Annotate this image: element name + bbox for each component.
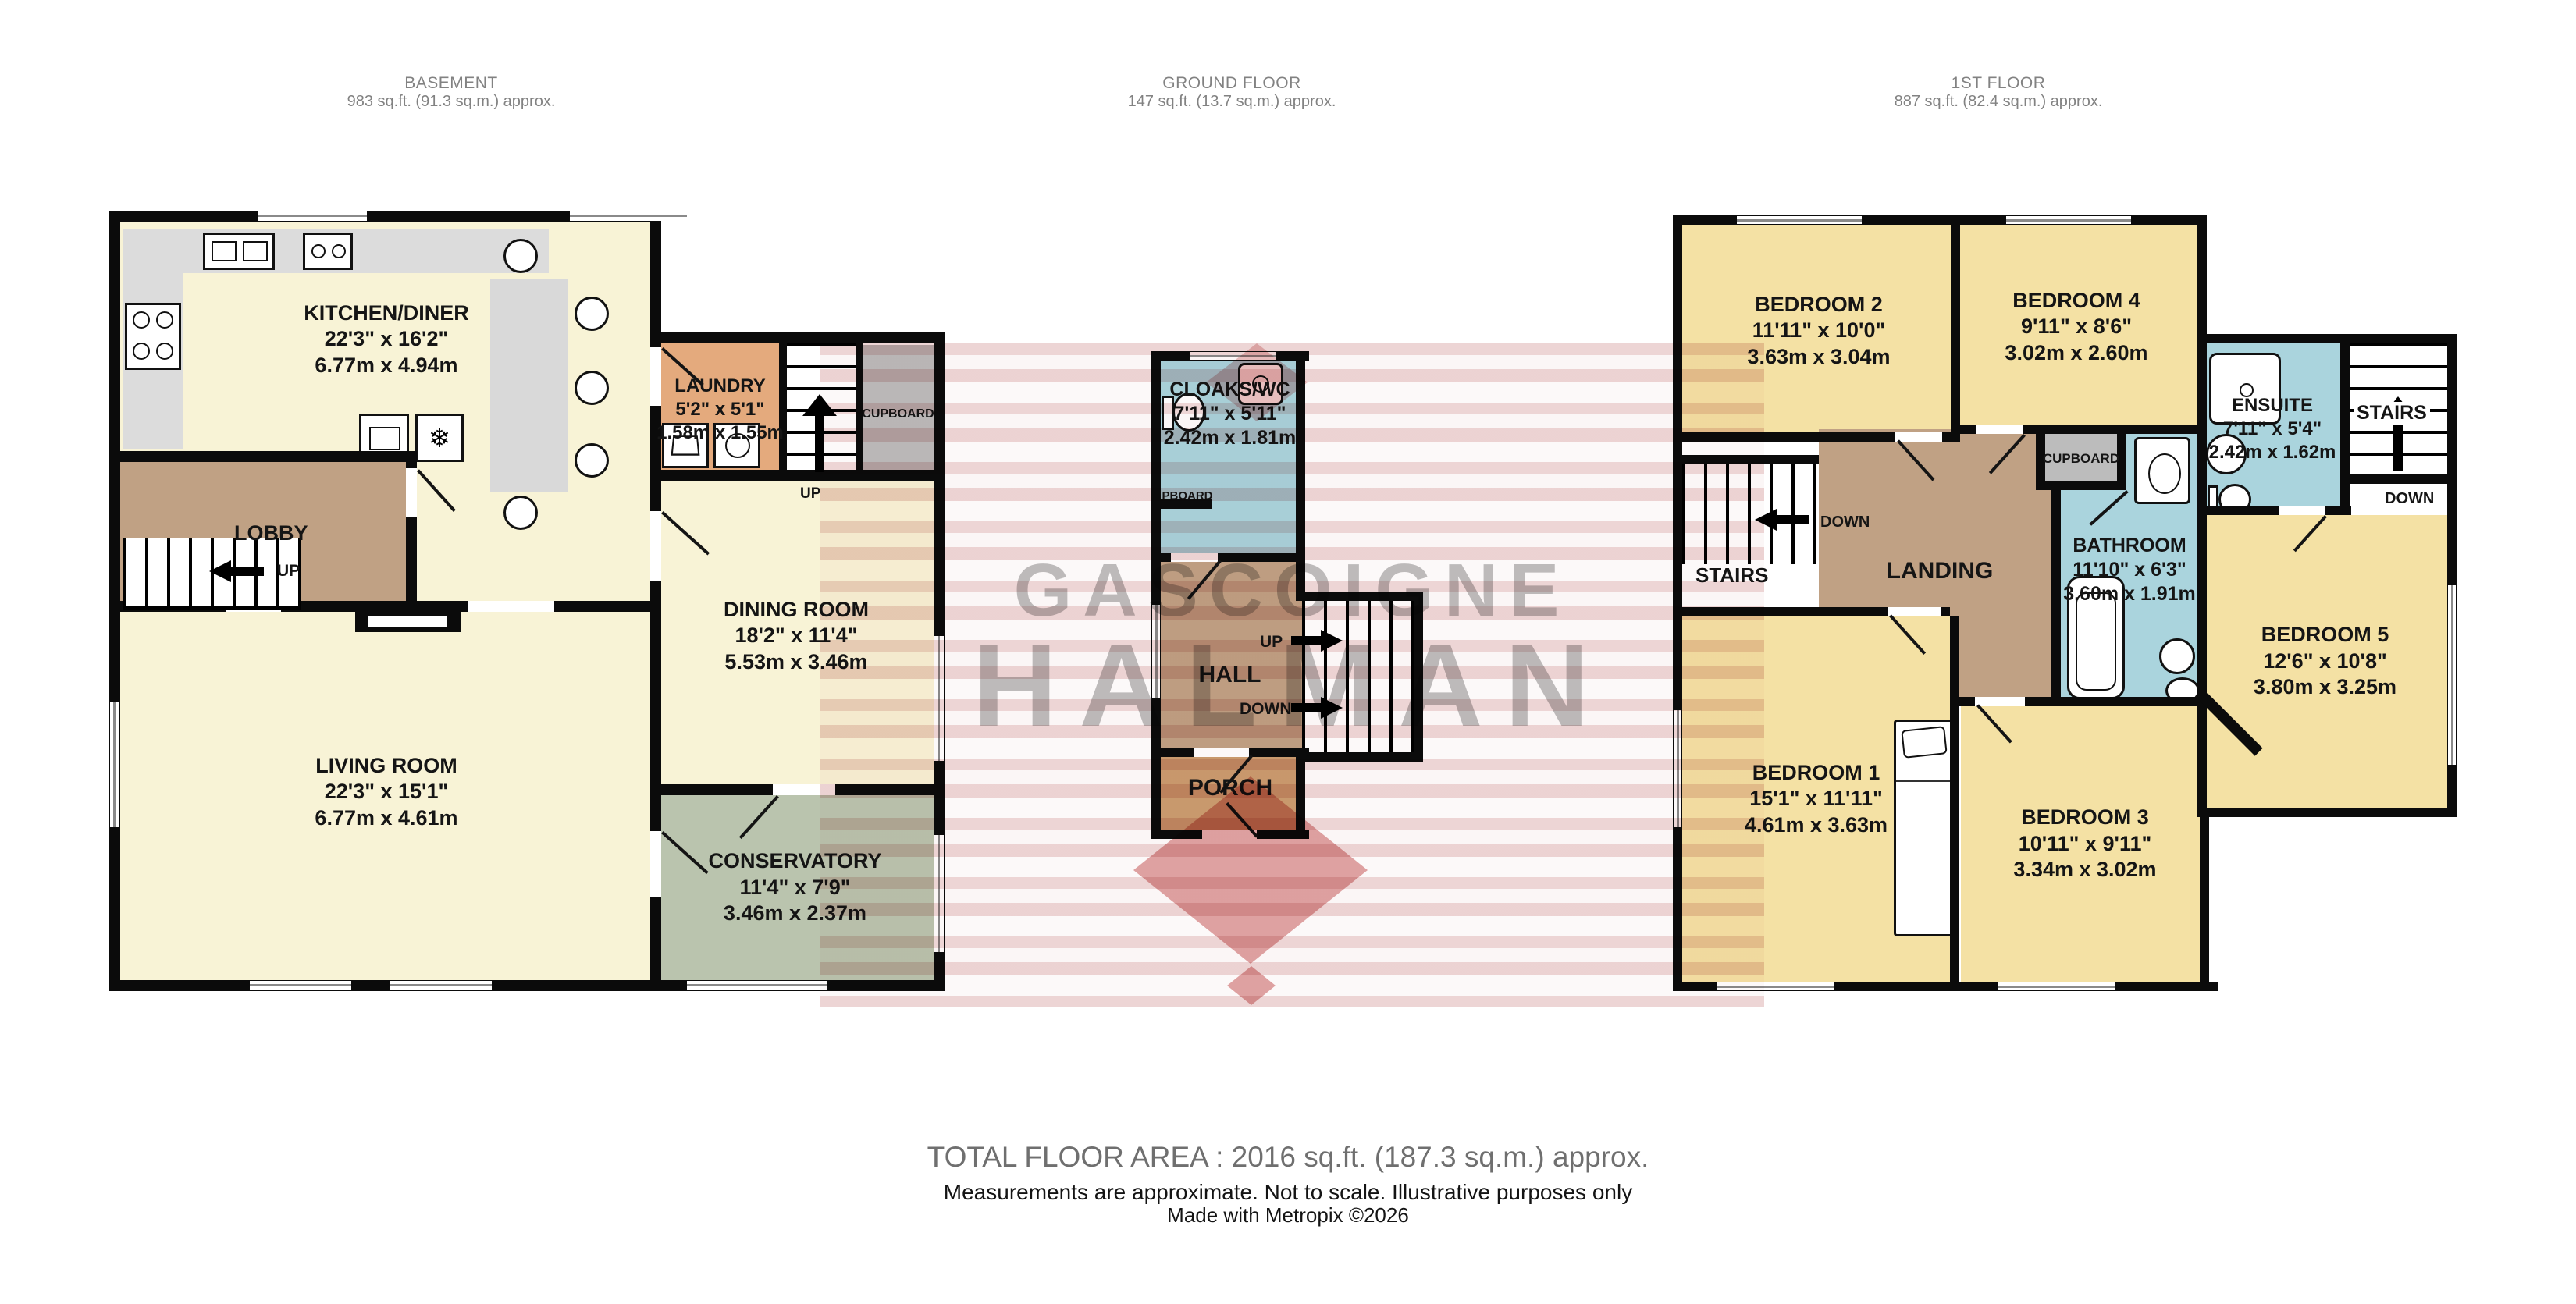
watermark-diamond-small xyxy=(1227,966,1276,1005)
ground-floor-header: GROUND FLOOR 147 sq.ft. (13.7 sq.m.) app… xyxy=(1076,74,1388,111)
window xyxy=(1737,216,1862,224)
window xyxy=(2448,585,2456,765)
window xyxy=(570,211,687,221)
window xyxy=(2006,216,2131,224)
living-label: LIVING ROOM 22'3" x 15'1" 6.77m x 4.61m xyxy=(117,601,656,983)
up-arrow xyxy=(1291,630,1343,652)
bathroom-label: BATHROOM 11'10" x 6'3" 3.60m x 1.91m xyxy=(2051,523,2208,616)
pboard-label: PBOARD xyxy=(1160,489,1215,503)
laundry-label: LAUNDRY 5'2" x 5'1" 1.58m x 1.55m xyxy=(621,367,820,453)
up-arrow xyxy=(209,560,264,582)
kitchen-label: KITCHEN/DINER 22'3" x 16'2" 6.77m x 4.94… xyxy=(117,297,656,382)
bedroom3-label: BEDROOM 3 10'11" x 9'11" 3.34m x 3.02m xyxy=(1961,706,2209,982)
chair-icon xyxy=(503,496,538,530)
window xyxy=(1190,352,1276,360)
floorplan-canvas: BASEMENT 983 sq.ft. (91.3 sq.m.) approx.… xyxy=(0,0,2576,1304)
total-floor-area: TOTAL FLOOR AREA : 2016 sq.ft. (187.3 sq… xyxy=(742,1141,1834,1174)
basement-header: BASEMENT 983 sq.ft. (91.3 sq.m.) approx. xyxy=(295,74,607,111)
bedroom2-label: BEDROOM 2 11'11" x 10'0" 3.63m x 3.04m xyxy=(1682,225,1955,437)
hall-label: HALL xyxy=(1158,658,1302,692)
conservatory-label: CONSERVATORY 11'4" x 7'9" 3.46m x 2.37m xyxy=(656,792,934,983)
down-label: DOWN xyxy=(2385,490,2434,508)
first-floor-title: 1ST FLOOR xyxy=(1842,74,2154,93)
basement-plan: ❄ xyxy=(109,211,945,991)
down-arrow xyxy=(1291,697,1343,719)
first-floor-header: 1ST FLOOR 887 sq.ft. (82.4 sq.m.) approx… xyxy=(1842,74,2154,111)
down-label: DOWN xyxy=(1240,700,1292,719)
kitchen-sink-icon xyxy=(203,233,275,270)
bedroom4-label: BEDROOM 4 9'11" x 8'6" 3.02m x 2.60m xyxy=(1955,225,2197,429)
landing-label: LANDING xyxy=(1850,554,2030,588)
window xyxy=(258,211,367,221)
cloaks-label: CLOAKS/WC 7'11" x 5'11" 2.42m x 1.81m xyxy=(1158,367,1302,460)
window xyxy=(1998,982,2115,990)
cupboard-label: CUPBOARD xyxy=(859,407,937,421)
sink-icon xyxy=(2134,437,2190,504)
lobby-label: LOBBY xyxy=(234,521,308,545)
stairs-label: STAIRS xyxy=(2354,402,2430,425)
down-arrow xyxy=(1755,509,1809,531)
disclaimer: Measurements are approximate. Not to sca… xyxy=(742,1180,1834,1205)
up-label: UP xyxy=(1260,633,1283,652)
bedroom1-label: BEDROOM 1 15'1" x 11'11" 4.61m x 3.63m xyxy=(1682,616,1950,982)
up-label: UP xyxy=(277,562,300,581)
ground-floor-area: 147 sq.ft. (13.7 sq.m.) approx. xyxy=(1076,93,1388,111)
chair-icon xyxy=(503,239,538,273)
window xyxy=(1674,710,1681,827)
dining-label: DINING ROOM 18'2" x 11'4" 5.53m x 3.46m xyxy=(656,480,937,792)
cupboard-label: CUPBOARD xyxy=(2041,451,2122,467)
freezer-icon: ❄ xyxy=(415,414,464,462)
hall-stairs xyxy=(1302,601,1417,754)
porch-label: PORCH xyxy=(1161,771,1300,805)
ensuite-label: ENSUITE 7'11" x 5'4" 2.42m x 1.62m xyxy=(2203,386,2342,472)
stairs-label: STAIRS xyxy=(1695,563,1768,588)
basement-title: BASEMENT xyxy=(295,74,607,93)
basement-area: 983 sq.ft. (91.3 sq.m.) approx. xyxy=(295,93,607,111)
first-floor-plan: DOWN STAIRS STAIRS DOWN CUPBOARD BEDROOM… xyxy=(1663,211,2475,991)
ground-floor-plan: UP DOWN PBOARD CLOAKS/WC 7'11" x 5'11" 2… xyxy=(1147,347,1429,839)
first-floor-area: 887 sq.ft. (82.4 sq.m.) approx. xyxy=(1842,93,2154,111)
glass-rack-icon xyxy=(303,233,353,270)
sink-icon xyxy=(2159,638,2195,674)
credit: Made with Metropix ©2026 xyxy=(742,1203,1834,1228)
bedroom5-label: BEDROOM 5 12'6" x 10'8" 3.80m x 3.25m xyxy=(2203,515,2447,808)
down-label: DOWN xyxy=(1820,513,1870,531)
window xyxy=(1717,982,1834,990)
window xyxy=(934,835,944,952)
chair-icon xyxy=(575,443,609,478)
ground-floor-title: GROUND FLOOR xyxy=(1076,74,1388,93)
